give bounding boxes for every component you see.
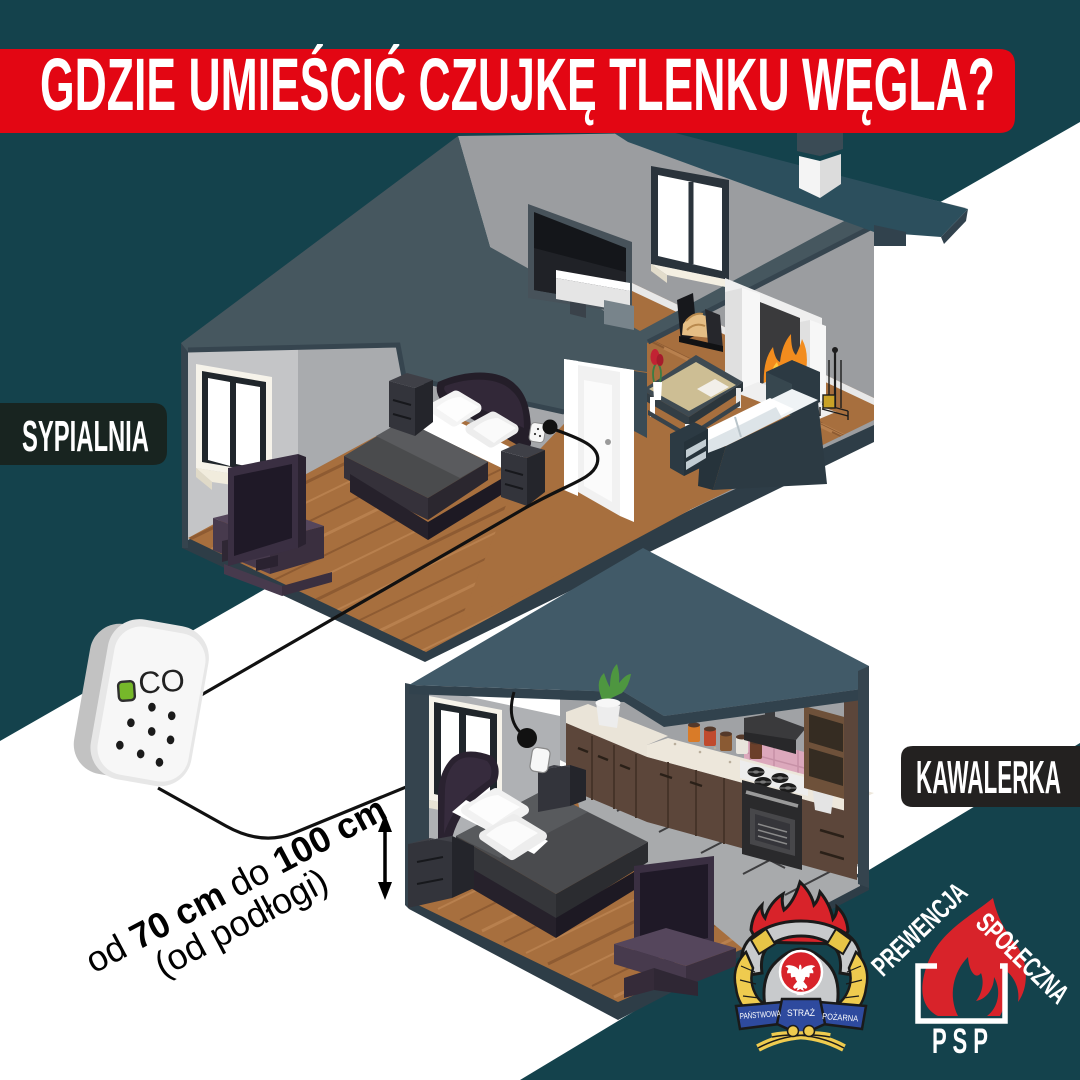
svg-text:STRAŻ: STRAŻ — [787, 1008, 815, 1019]
svg-text:SYPIALNIA: SYPIALNIA — [22, 412, 149, 461]
svg-text:P S P: P S P — [932, 1022, 988, 1061]
svg-text:CO: CO — [137, 663, 186, 701]
svg-text:KAWALERKA: KAWALERKA — [916, 751, 1061, 803]
svg-text:GDZIE UMIEŚCIĆ CZUJKĘ TLENKU W: GDZIE UMIEŚCIĆ CZUJKĘ TLENKU WĘGLA? — [40, 43, 995, 126]
